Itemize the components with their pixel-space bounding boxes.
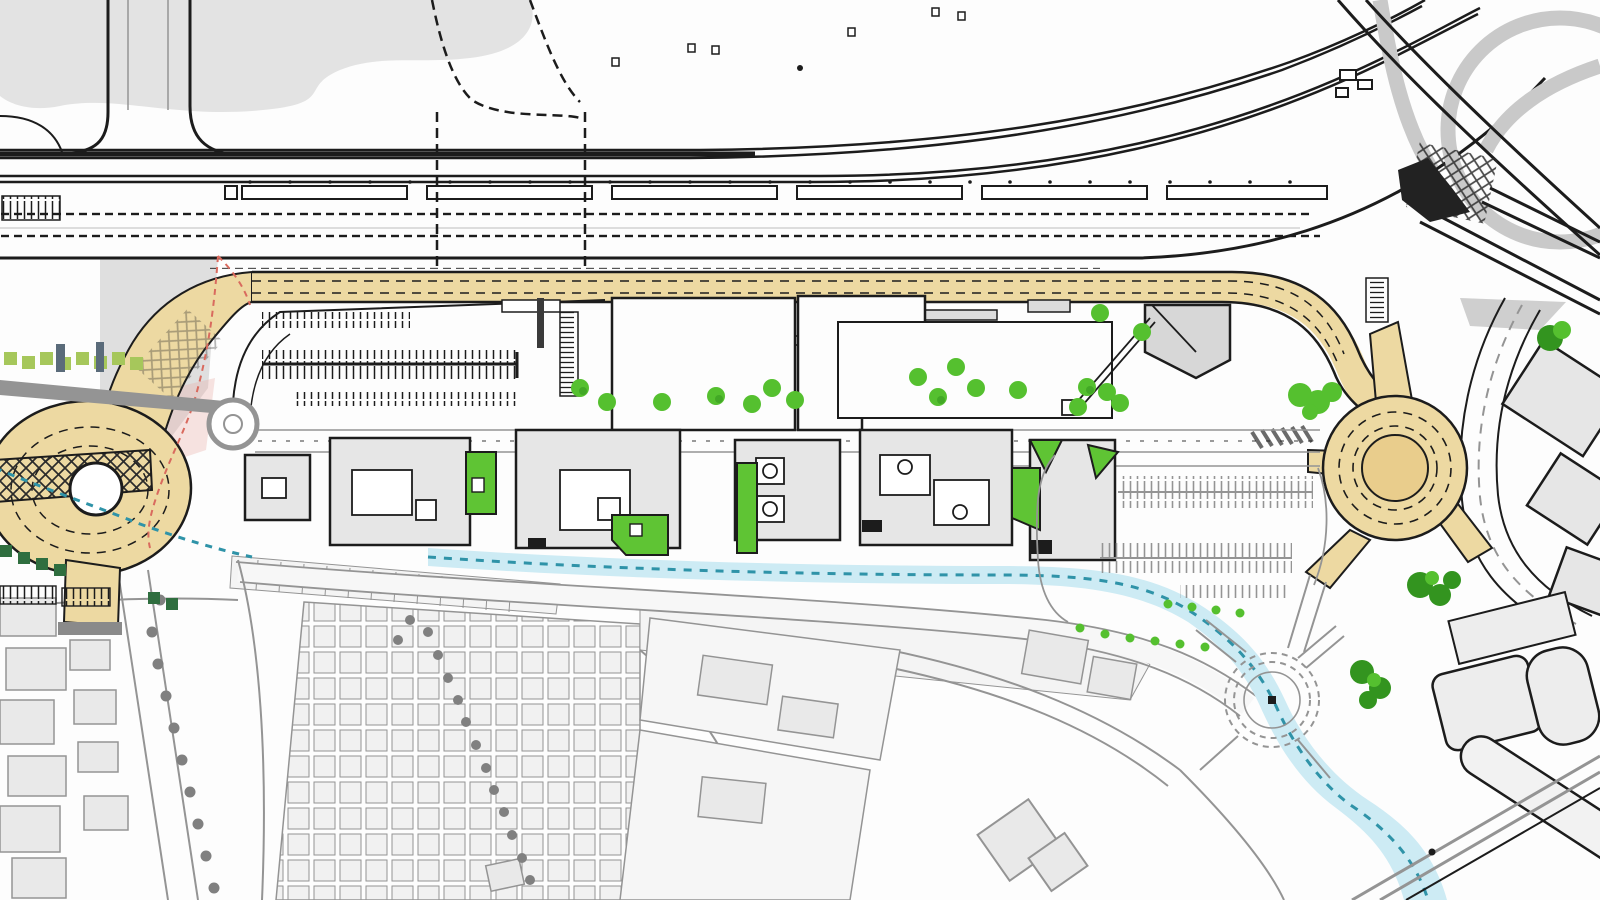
local-roundabout bbox=[209, 400, 257, 448]
site-plan-map bbox=[0, 0, 1600, 900]
site-plan-canvas bbox=[0, 0, 1600, 900]
